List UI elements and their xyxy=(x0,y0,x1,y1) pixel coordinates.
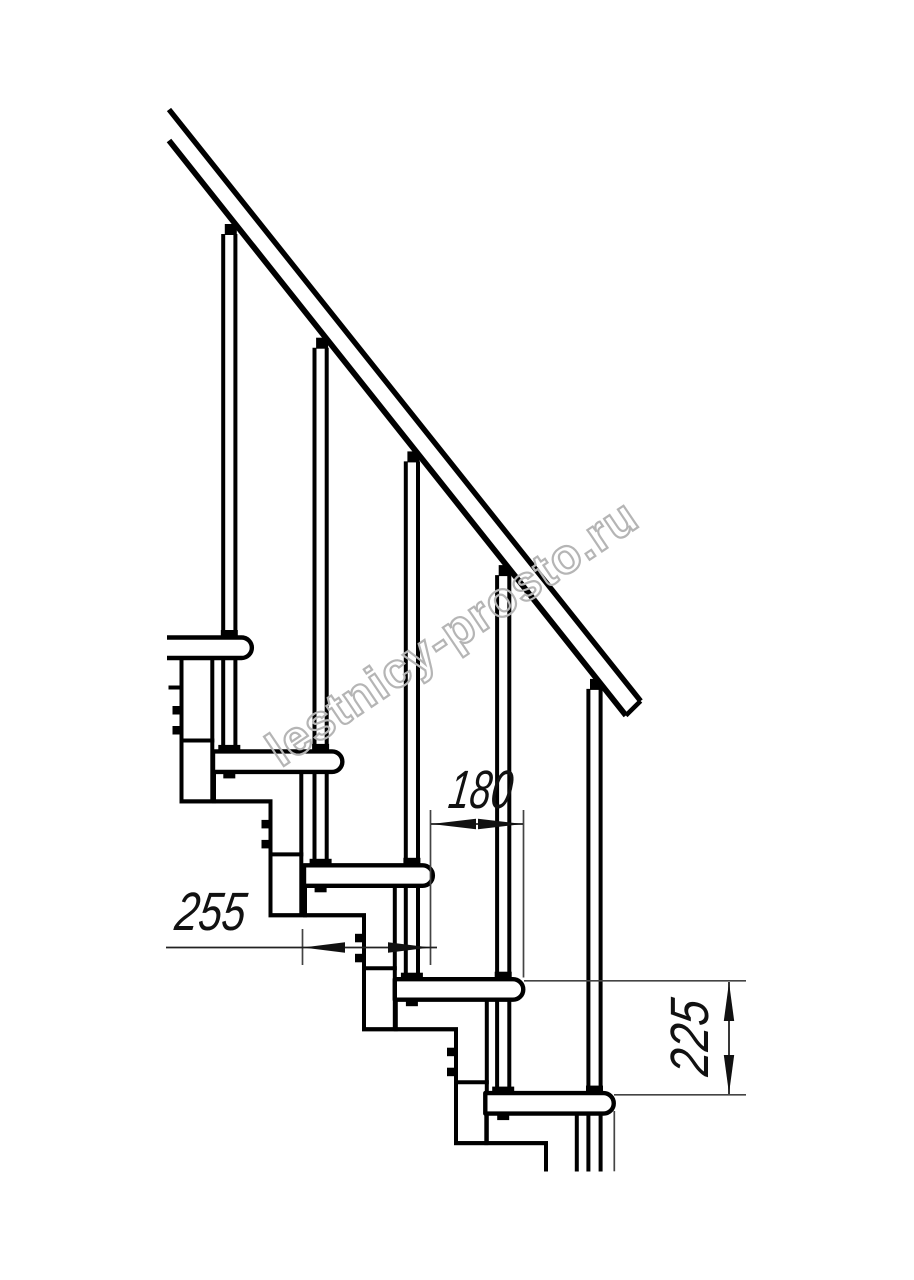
svg-text:225: 225 xyxy=(660,995,720,1080)
svg-text:180: 180 xyxy=(445,760,516,820)
svg-text:255: 255 xyxy=(171,882,251,942)
